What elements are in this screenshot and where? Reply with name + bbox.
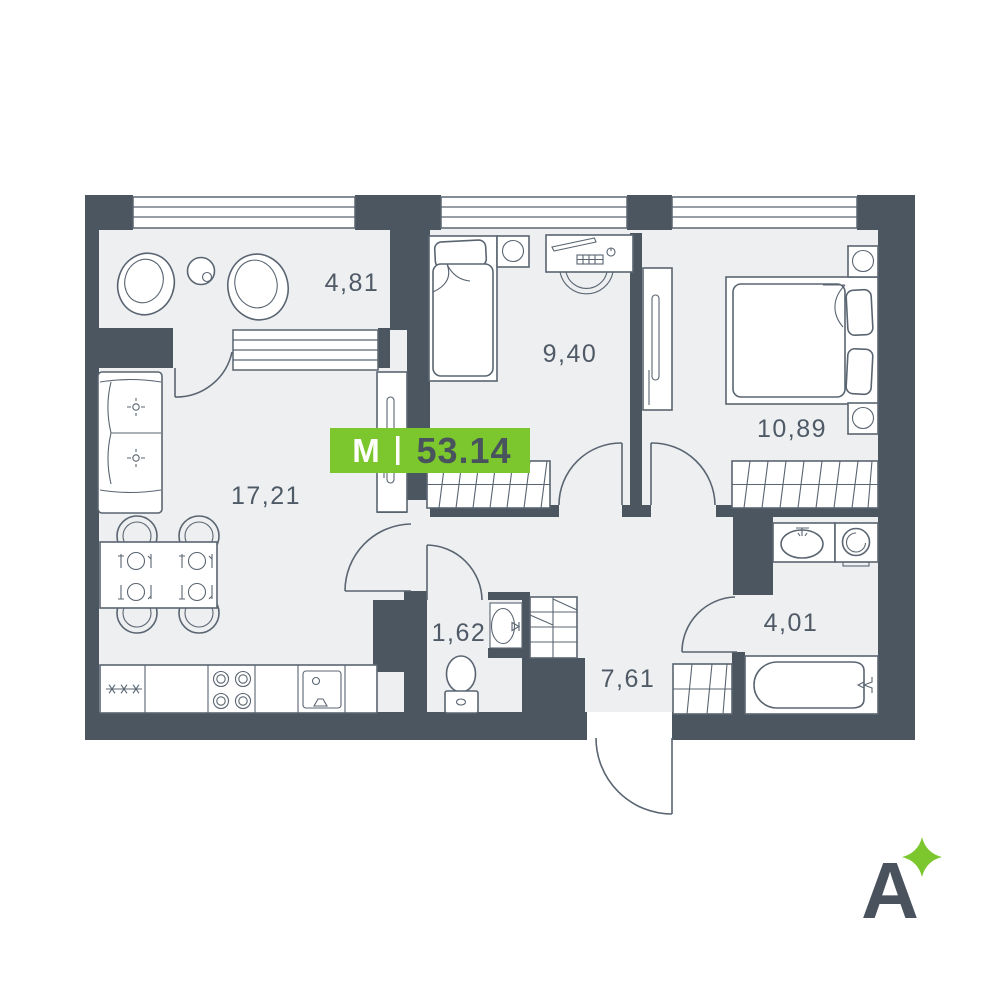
dining-table	[100, 542, 217, 608]
bathtub	[745, 656, 878, 714]
label-balcony: 4,81	[325, 269, 380, 297]
label-living-kitchen: 17,21	[231, 482, 301, 510]
badge-divider	[396, 436, 400, 465]
window-balcony	[133, 197, 355, 228]
pillow	[846, 289, 873, 335]
kitchen-counter	[100, 665, 377, 713]
double-bed	[726, 277, 878, 404]
label-bedroom-small: 9,40	[543, 340, 598, 368]
total-area-badge: M 53.14	[330, 428, 530, 473]
bathroom-sink	[773, 523, 835, 562]
brand-logo: A	[861, 837, 942, 935]
floor-plan-drawing: 4,81 17,21 9,40 10,89 1,62 7,61 4,01 M 5…	[0, 0, 1000, 1000]
badge-total-area: 53.14	[416, 430, 511, 471]
washing-machine	[835, 523, 878, 566]
wardrobe	[643, 268, 672, 410]
single-bed	[429, 236, 497, 381]
wardrobe-hatched	[732, 461, 878, 508]
facade-windows	[133, 197, 857, 228]
wardrobe-hatched	[530, 597, 577, 658]
label-wc: 1,62	[432, 619, 487, 647]
small-sink	[490, 603, 522, 648]
sofa	[98, 372, 162, 513]
side-table	[188, 258, 215, 285]
label-hallway: 7,61	[601, 665, 656, 693]
pillow	[846, 348, 873, 394]
entrance-door	[596, 738, 672, 814]
nightstand	[848, 246, 878, 277]
label-bedroom-master: 10,89	[757, 415, 827, 443]
desk	[546, 235, 633, 272]
toilet	[445, 656, 478, 713]
nightstand	[848, 403, 878, 434]
label-bathroom: 4,01	[764, 609, 819, 637]
nightstand	[497, 236, 529, 267]
badge-letter: M	[352, 432, 380, 469]
window-bedroom-master	[672, 197, 857, 228]
wardrobe-hatched	[673, 664, 732, 714]
window-bedroom-small	[441, 197, 627, 228]
balcony-window-sill	[233, 330, 378, 370]
floor-plan-page: 4,81 17,21 9,40 10,89 1,62 7,61 4,01 M 5…	[0, 0, 1000, 1000]
